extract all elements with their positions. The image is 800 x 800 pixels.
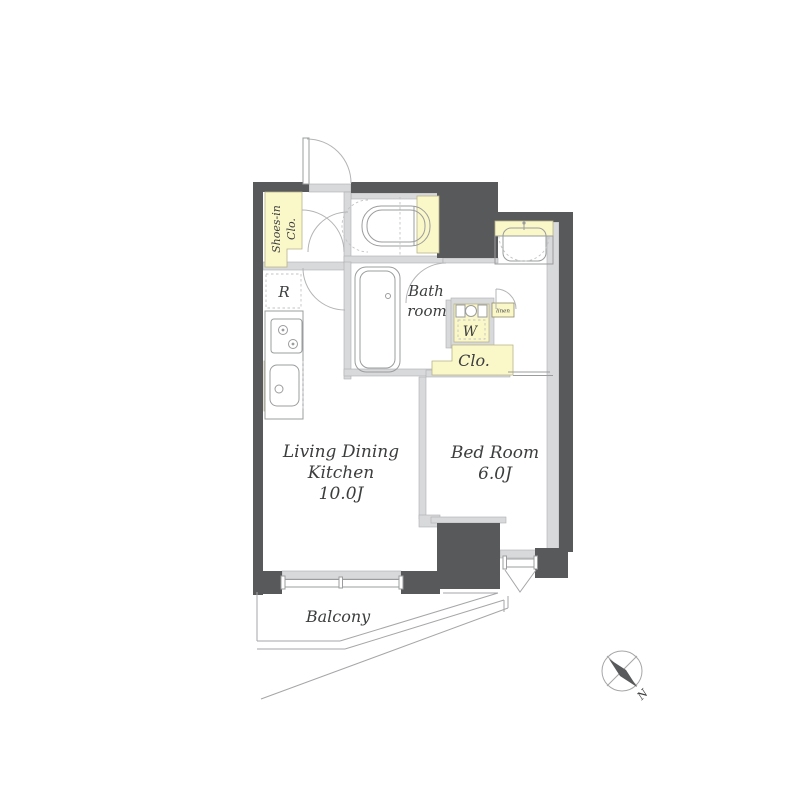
shoes-closet-label-line2: Clo.	[285, 218, 298, 240]
entrance-door-arc	[307, 139, 351, 183]
top-wall-left	[253, 182, 309, 192]
bedroom-window-cap	[503, 556, 507, 569]
washer-tap-left	[456, 305, 465, 317]
bedroom-window-swing	[505, 570, 536, 592]
bath-room-label-line1: Bath	[407, 282, 444, 300]
refrigerator-label: R	[277, 283, 289, 301]
partition-walls	[263, 184, 559, 579]
entrance-door-leaf	[303, 138, 309, 184]
shaft-bottom-lining	[443, 258, 498, 263]
stove-burner-dot	[292, 343, 295, 346]
balcony-label: Balcony	[305, 607, 371, 626]
toilet-bath-wall	[344, 256, 443, 263]
bath-bottom-wall	[344, 369, 436, 376]
bedroom-window-cap	[534, 556, 538, 569]
bedroom-size-label: 6.0J	[478, 464, 513, 484]
right-wall	[559, 212, 573, 552]
hall-ldk-door-arc	[303, 268, 345, 310]
pillar-lining	[431, 517, 506, 523]
ldk-size-label: 10.0J	[319, 484, 365, 504]
shoes-closet-label-line1: Shoes-in	[270, 205, 283, 253]
floor-plan-page: N Shoes-in Clo. R Bath room W linen Clo.…	[0, 0, 800, 800]
washer-drum-icon	[466, 306, 477, 317]
balcony	[257, 592, 508, 699]
left-wall	[253, 182, 263, 595]
washer-label: W	[463, 324, 479, 340]
toilet-bowl	[367, 210, 425, 242]
bath-room-label-line2: room	[407, 302, 446, 320]
bath-left-wall	[344, 262, 351, 379]
compass: N	[602, 651, 651, 703]
compass-needle	[609, 659, 637, 687]
ldk-label-line2: Kitchen	[307, 463, 374, 483]
compass-north-label: N	[634, 686, 651, 703]
vanity-faucet-dot	[522, 221, 525, 224]
ldk-bedroom-partition	[419, 377, 426, 519]
entrance-sill	[309, 184, 351, 192]
bathtub-drain-icon	[386, 294, 391, 299]
bathtub	[355, 267, 400, 372]
washer-tap-right	[478, 305, 487, 317]
toilet-left-wall	[344, 192, 351, 262]
floor-plan-svg: N Shoes-in Clo. R Bath room W linen Clo.…	[0, 0, 800, 800]
top-wall-right	[351, 182, 440, 193]
stove-burner-dot	[282, 329, 285, 332]
vanity-clearance-arc	[499, 236, 549, 261]
toilet-door-arc	[308, 212, 348, 252]
site-boundary-line	[261, 608, 508, 699]
bottom-right-wall	[535, 548, 568, 578]
ldk-window-cap	[281, 576, 285, 589]
bottom-mid-wall	[401, 571, 440, 594]
toilet-tank-pad	[417, 196, 439, 253]
ldk-window-cap	[399, 576, 403, 589]
center-pillar	[437, 523, 500, 589]
bottom-left-wall	[253, 571, 282, 594]
pipe-shaft	[437, 182, 498, 258]
bedroom-label: Bed Room	[450, 443, 539, 463]
closet-label: Clo.	[458, 351, 490, 370]
bathtub-inner	[360, 271, 395, 368]
linen-label: linen	[496, 309, 510, 315]
ldk-label-line1: Living Dining	[282, 442, 399, 462]
ldk-window-mullion	[339, 577, 343, 588]
right-wall-lining	[547, 222, 559, 550]
